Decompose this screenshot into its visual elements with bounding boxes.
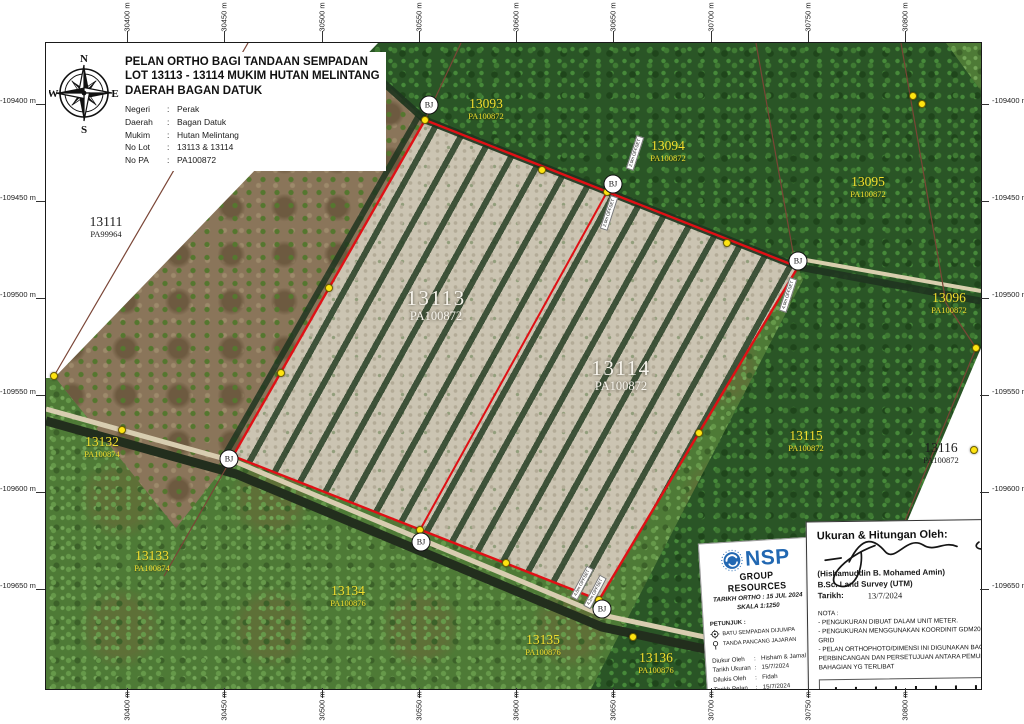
lot-label-13096: 13096PA100872 [931, 291, 967, 315]
lot-number: 13113 [406, 287, 465, 310]
axis-tick-right [980, 201, 989, 202]
lot-label-13111: 13111PA99964 [90, 215, 123, 239]
axis-tick-top [711, 31, 712, 42]
plan-info-sep: : [167, 141, 177, 154]
plan-info-value: Hutan Melintang [177, 129, 239, 142]
boundary-stone-marker [918, 100, 926, 108]
axis-label-right: -109400 m [992, 96, 1024, 105]
axis-label-left: -109500 m [0, 290, 34, 299]
axis-label-top: 30700 m [706, 2, 715, 31]
plan-title: PELAN ORTHO BAGI TANDAAN SEMPADAN LOT 13… [125, 55, 380, 98]
axis-label-right: -109650 m [992, 581, 1024, 590]
scale-bar-tick [935, 686, 937, 690]
boundary-stone-marker [629, 633, 637, 641]
boundary-stone-marker [50, 372, 58, 380]
lot-pa-number: PA100872 [591, 380, 650, 394]
axis-label-top: 30550 m [414, 2, 423, 31]
legend-block: PETUNJUK : BATU SEMPADAN DIJUMPATANDA PA… [710, 616, 810, 649]
nota-block: NOTA : - PENGUKURAN DIBUAT DALAM UNIT ME… [818, 608, 982, 673]
axis-tick-top [224, 31, 225, 42]
plan-info-value: Bagan Datuk [177, 116, 226, 129]
plan-info-label: Negeri [125, 103, 167, 116]
nsp-logo-icon [720, 549, 743, 572]
axis-tick-left [36, 589, 45, 590]
scale-bar-tick [875, 687, 877, 690]
boundary-stone-marker [972, 344, 980, 352]
lot-label-13132: 13132PA100874 [84, 435, 120, 459]
compass-rose: N E S W [49, 51, 119, 140]
lot-pa-number: PA100874 [134, 564, 170, 573]
axis-tick-top [419, 31, 420, 42]
plan-info-row: No Lot:13113 & 13114 [125, 141, 380, 154]
axis-tick-top [808, 31, 809, 42]
orthophoto-map-area: 2.0m OFFSET2.0m OFFSET4.0m OFFSET4.0m OF… [45, 42, 982, 690]
compass-south-label: S [81, 124, 87, 135]
lot-number: 13093 [468, 97, 504, 112]
axis-tick-left [36, 298, 45, 299]
axis-tick-left [36, 492, 45, 493]
lot-number: 13132 [84, 435, 120, 450]
bj-marker: BJ [220, 450, 239, 469]
lot-label-13093: 13093PA100872 [468, 97, 504, 121]
lot-number: 13134 [330, 584, 366, 599]
lot-pa-number: PA100872 [788, 444, 824, 453]
survey-plan-sheet: 2.0m OFFSET2.0m OFFSET4.0m OFFSET4.0m OF… [0, 0, 1024, 724]
axis-label-bottom: 30800 m [901, 691, 910, 720]
lot-number: 13095 [850, 175, 886, 190]
nsp-brand-text: NSP [744, 545, 790, 572]
axis-label-bottom: 30650 m [609, 691, 618, 720]
signature-icon [811, 522, 982, 596]
plan-admin-table: Diukur Oleh:Hisham & JamalTarikh Ukuran:… [712, 651, 814, 690]
scale-bar-tick [915, 686, 917, 690]
bj-marker: BJ [593, 600, 612, 619]
axis-label-left: -109600 m [0, 484, 34, 493]
axis-label-top: 30600 m [512, 2, 521, 31]
lot-pa-number: PA100872 [650, 154, 686, 163]
nsp-info-card: NSP GROUP RESOURCES TARIKH ORTHO : 15 JU… [698, 537, 820, 690]
axis-tick-right [980, 492, 989, 493]
axis-label-top: 30650 m [609, 2, 618, 31]
lot-label-13115: 13115PA100872 [788, 429, 824, 453]
lot-label-13095: 13095PA100872 [850, 175, 886, 199]
axis-label-right: -109550 m [992, 387, 1024, 396]
lot-label-13114: 13114PA100872 [591, 357, 650, 393]
axis-label-right: -109450 m [992, 193, 1024, 202]
plan-info-label: Daerah [125, 116, 167, 129]
axis-tick-top [613, 31, 614, 42]
compass-west-label: W [49, 88, 59, 100]
axis-label-left: -109450 m [0, 193, 34, 202]
scale-bar-tick [835, 687, 837, 690]
scale-bar-tick [955, 686, 957, 690]
lot-number: 13136 [638, 651, 674, 666]
axis-label-bottom: 30400 m [123, 691, 132, 720]
plan-info-label: No PA [125, 154, 167, 167]
lot-pa-number: PA99964 [90, 230, 123, 239]
lot-pa-number: PA100872 [406, 310, 465, 324]
lot-pa-number: PA100876 [330, 599, 366, 608]
plan-info-fields: Negeri:PerakDaerah:Bagan DatukMukim:Huta… [125, 103, 380, 167]
axis-label-bottom: 30700 m [706, 691, 715, 720]
title-block: PELAN ORTHO BAGI TANDAAN SEMPADAN LOT 13… [119, 52, 386, 171]
boundary-stone-marker [277, 369, 285, 377]
axis-tick-left [36, 395, 45, 396]
plan-info-sep: : [167, 103, 177, 116]
axis-tick-top [322, 31, 323, 42]
plan-info-sep: : [167, 154, 177, 167]
axis-label-bottom: 30750 m [803, 691, 812, 720]
plan-info-row: No PA:PA100872 [125, 154, 380, 167]
axis-tick-right [980, 589, 989, 590]
axis-label-bottom: 30450 m [220, 691, 229, 720]
bj-marker: BJ [789, 252, 808, 271]
axis-label-left: -109400 m [0, 96, 34, 105]
axis-label-right: -109600 m [992, 484, 1024, 493]
scale-bar-tick [975, 685, 977, 690]
plan-info-sep: : [167, 116, 177, 129]
scale-bar-tick [895, 686, 897, 690]
boundary-stone-marker [538, 166, 546, 174]
scale-bar-tick [855, 687, 857, 690]
boundary-stone-icon [710, 630, 720, 640]
lot-label-13136: 13136PA100876 [638, 651, 674, 675]
axis-tick-right [980, 395, 989, 396]
lot-number: 13111 [90, 215, 123, 230]
plan-info-sep: : [167, 129, 177, 142]
bj-marker: BJ [420, 96, 439, 115]
lot-label-13116: 13116PA100872 [923, 441, 959, 465]
boundary-stone-marker [421, 116, 429, 124]
plan-info-label: Mukim [125, 129, 167, 142]
lot-number: 13114 [591, 357, 650, 380]
admin-table-value: 15/7/2024 [762, 681, 790, 690]
compass-north-label: N [80, 53, 88, 65]
axis-label-top: 30400 m [123, 2, 132, 31]
plan-info-label: No Lot [125, 141, 167, 154]
lot-number: 13116 [923, 441, 959, 456]
axis-label-left: -109650 m [0, 581, 34, 590]
alignment-stake-icon [711, 640, 721, 650]
lot-label-13134: 13134PA100876 [330, 584, 366, 608]
axis-tick-top [516, 31, 517, 42]
lot-pa-number: PA100876 [638, 666, 674, 675]
lot-number: 13096 [931, 291, 967, 306]
axis-tick-right [980, 298, 989, 299]
axis-label-left: -109550 m [0, 387, 34, 396]
lot-pa-number: PA100872 [923, 456, 959, 465]
boundary-stone-marker [723, 239, 731, 247]
lot-number: 13115 [788, 429, 824, 444]
axis-label-right: -109500 m [992, 290, 1024, 299]
axis-label-top: 30750 m [803, 2, 812, 31]
axis-tick-right [980, 104, 989, 105]
axis-tick-top [127, 31, 128, 42]
plan-info-row: Mukim:Hutan Melintang [125, 129, 380, 142]
admin-table-row: Disemak oleh:Zaidi [714, 689, 813, 690]
plan-info-value: 13113 & 13114 [177, 141, 233, 154]
plan-info-row: Daerah:Bagan Datuk [125, 116, 380, 129]
lot-pa-number: PA100872 [850, 190, 886, 199]
axis-label-top: 30450 m [220, 2, 229, 31]
plan-info-row: Negeri:Perak [125, 103, 380, 116]
compass-east-label: E [111, 88, 118, 100]
legend-item-label: TANDA PANCANG JAJARAN [723, 637, 797, 647]
lot-label-13133: 13133PA100874 [134, 549, 170, 573]
bj-marker: BJ [604, 175, 623, 194]
boundary-stone-marker [118, 426, 126, 434]
lot-pa-number: PA100874 [84, 450, 120, 459]
boundary-stone-marker [909, 92, 917, 100]
boundary-stone-marker [695, 429, 703, 437]
lot-pa-number: PA100872 [931, 306, 967, 315]
axis-tick-top [905, 31, 906, 42]
axis-tick-left [36, 104, 45, 105]
compass-star [56, 65, 112, 121]
lot-label-13113: 13113PA100872 [406, 287, 465, 323]
signature-card: Ukuran & Hitungan Oleh: (Hishamuddin B. … [806, 519, 982, 690]
axis-label-top: 30800 m [901, 2, 910, 31]
lot-number: 13135 [525, 633, 561, 648]
axis-label-bottom: 30600 m [512, 691, 521, 720]
boundary-stone-marker [970, 446, 978, 454]
axis-label-bottom: 30550 m [414, 691, 423, 720]
axis-label-top: 30500 m [317, 2, 326, 31]
plan-info-value: PA100872 [177, 154, 216, 167]
boundary-stone-marker [325, 284, 333, 292]
lot-label-13135: 13135PA100876 [525, 633, 561, 657]
boundary-stone-marker [502, 559, 510, 567]
axis-tick-left [36, 201, 45, 202]
lot-pa-number: PA100876 [525, 648, 561, 657]
scale-bar: 0 m20 m40 m60 m80 m [819, 677, 982, 690]
lot-pa-number: PA100872 [468, 112, 504, 121]
nota-line: - PENGUKURAN MENGGUNAKAN KOORDINIT GDM20… [818, 626, 982, 647]
lot-label-13094: 13094PA100872 [650, 139, 686, 163]
bj-marker: BJ [412, 533, 431, 552]
axis-label-bottom: 30500 m [317, 691, 326, 720]
lot-number: 13094 [650, 139, 686, 154]
nota-line: - PELAN ORTHOPHOTO/DIMENSI INI DIGUNAKAN… [818, 644, 982, 674]
lot-number: 13133 [134, 549, 170, 564]
plan-info-value: Perak [177, 103, 199, 116]
